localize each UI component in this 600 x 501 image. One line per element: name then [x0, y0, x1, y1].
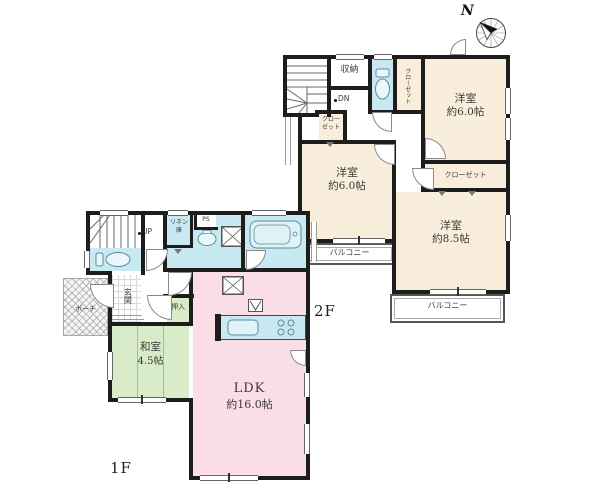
wall-segment [343, 110, 347, 143]
linen-label: リネン庫 [166, 219, 192, 235]
kitchen-sink-icon [227, 319, 259, 336]
toilet-icon-1f [94, 250, 138, 269]
door-arc [147, 295, 172, 320]
window-tick [457, 287, 459, 296]
window [505, 88, 511, 114]
entrance-step-line [112, 319, 144, 320]
window [100, 210, 128, 216]
closet-door-marker [174, 249, 182, 254]
north-label: N [461, 3, 474, 19]
bedroom-se-label: 洋室約8.5帖 [396, 219, 506, 247]
wall-segment [283, 55, 287, 117]
wall-segment [215, 314, 221, 341]
stairs-2f [287, 59, 327, 113]
window [505, 118, 511, 140]
floor-2-label: 2F [314, 302, 336, 320]
wall-segment [190, 215, 193, 248]
closet-door-marker [326, 142, 334, 147]
window-tick [358, 236, 360, 245]
wall-segment [189, 398, 193, 480]
wall-segment [421, 160, 506, 164]
wall-segment [108, 322, 192, 326]
storage-2f-label: 収納 [331, 65, 368, 77]
closet-2f-main-label: クローゼット [425, 171, 506, 180]
entrance-step-line [112, 315, 142, 316]
window [107, 352, 113, 380]
window [168, 210, 188, 216]
closet-2f-small-label: クローゼット [317, 116, 345, 132]
cabinet-symbol [248, 297, 263, 316]
window [304, 373, 310, 397]
stove-icon [275, 317, 297, 338]
bathtub-icon [249, 220, 302, 249]
wall-segment [241, 211, 245, 272]
stairs-walkline-dot [334, 99, 337, 102]
window-swing-arc [450, 39, 466, 55]
window [336, 54, 364, 60]
window [285, 117, 291, 165]
floor-plan: 収納 クローゼット 洋室約6.0帖 クローゼット 洋室約6.0帖 クローゼット … [0, 0, 600, 501]
compass-icon [474, 16, 508, 50]
wall-segment [393, 55, 397, 114]
wall-segment [327, 86, 372, 90]
wall-segment [141, 211, 145, 275]
window [304, 424, 310, 454]
window [505, 215, 511, 241]
floor-1-label: 1F [110, 459, 132, 477]
stairs-1f-treads [90, 215, 141, 248]
toilet-icon-2f [373, 66, 392, 106]
sink-icon [196, 230, 218, 247]
bedroom-ne-label: 洋室約6.0帖 [425, 92, 506, 120]
stairs-dn-label: DN [338, 94, 349, 104]
stairs-1f [90, 215, 141, 248]
pipe-space-label: PS [196, 216, 216, 224]
window [311, 222, 317, 262]
window [374, 54, 392, 60]
bedroom-w-label: 洋室約6.0帖 [302, 166, 392, 194]
window-tick [228, 473, 230, 482]
wall-segment [392, 143, 396, 294]
wall-segment [167, 245, 193, 248]
window [252, 210, 286, 216]
washitsu-label: 和室4.5帖 [112, 341, 189, 368]
wall-segment [163, 211, 167, 272]
wall-segment [315, 110, 346, 114]
wall-segment [368, 55, 372, 113]
balcony-southeast-label: バルコニー [390, 301, 505, 311]
window [84, 251, 90, 268]
closet-2f-north-label: クローゼット [403, 64, 411, 108]
window-tick [141, 395, 143, 404]
closet-door-marker [438, 191, 446, 196]
entrance-label: 玄関 [122, 281, 132, 311]
porch-label: ポーチ [63, 305, 108, 314]
refrigerator-space [222, 276, 244, 299]
closet-door-marker [468, 191, 476, 196]
ldk-label: LDK約16.0帖 [193, 381, 306, 412]
stairs-2f-treads [287, 59, 327, 113]
door-arc [412, 168, 434, 190]
door-arc [372, 112, 392, 132]
